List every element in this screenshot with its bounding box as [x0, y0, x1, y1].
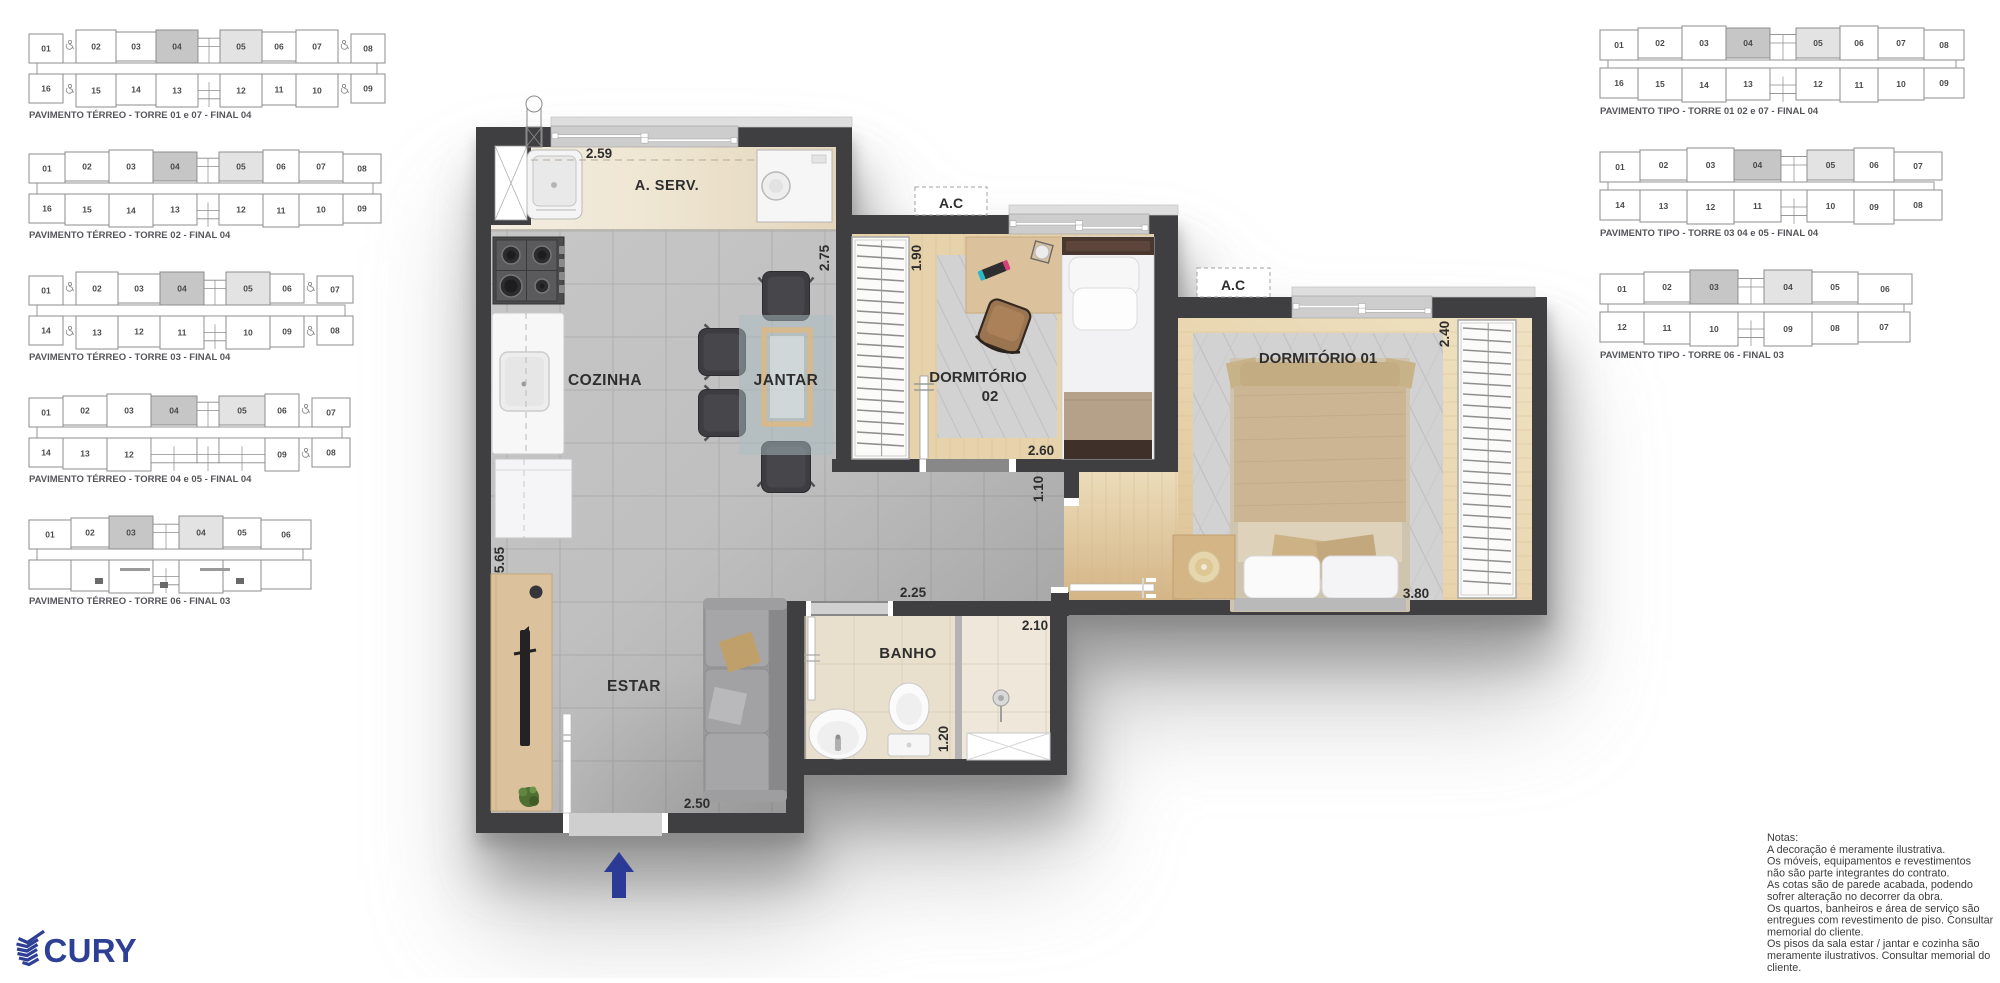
svg-text:12: 12 — [124, 450, 134, 460]
svg-text:07: 07 — [312, 42, 322, 52]
svg-text:04: 04 — [170, 162, 180, 172]
svg-text:2.60: 2.60 — [1028, 443, 1054, 458]
svg-text:05: 05 — [243, 284, 253, 294]
svg-text:A decoração é meramente ilustr: A decoração é meramente ilustrativa. — [1767, 844, 1945, 856]
svg-text:memorial do cliente.: memorial do cliente. — [1767, 926, 1864, 938]
svg-text:07: 07 — [1879, 322, 1889, 332]
svg-text:07: 07 — [1896, 38, 1906, 48]
svg-text:2.59: 2.59 — [586, 146, 612, 161]
svg-text:03: 03 — [1699, 38, 1709, 48]
svg-text:02: 02 — [82, 162, 92, 172]
svg-text:12: 12 — [1813, 79, 1823, 89]
svg-text:09: 09 — [277, 450, 287, 460]
svg-text:08: 08 — [1939, 40, 1949, 50]
svg-text:entregues com revestimento de: entregues com revestimento de piso. Cons… — [1767, 915, 1994, 927]
svg-text:14: 14 — [126, 206, 136, 216]
svg-text:03: 03 — [126, 162, 136, 172]
svg-text:JANTAR: JANTAR — [754, 372, 819, 389]
svg-text:ESTAR: ESTAR — [607, 678, 661, 695]
svg-text:10: 10 — [312, 86, 322, 96]
svg-text:02: 02 — [85, 528, 95, 538]
svg-text:05: 05 — [1826, 160, 1836, 170]
svg-text:PAVIMENTO TÉRREO - TORRE 01 e: PAVIMENTO TÉRREO - TORRE 01 e 07 - FINAL… — [29, 110, 252, 121]
svg-text:11: 11 — [277, 206, 286, 216]
svg-text:PAVIMENTO TÉRREO - TORRE 06 -: PAVIMENTO TÉRREO - TORRE 06 - FINAL 03 — [29, 596, 230, 607]
svg-text:01: 01 — [1614, 40, 1624, 50]
svg-text:05: 05 — [237, 528, 247, 538]
svg-text:02: 02 — [1662, 282, 1672, 292]
svg-text:04: 04 — [172, 42, 182, 52]
svg-text:08: 08 — [326, 448, 336, 458]
svg-text:2.25: 2.25 — [900, 585, 927, 600]
svg-text:COZINHA: COZINHA — [568, 372, 642, 389]
svg-text:11: 11 — [1753, 201, 1762, 211]
svg-text:1.10: 1.10 — [1031, 476, 1046, 502]
svg-text:14: 14 — [41, 448, 51, 458]
svg-text:BANHO: BANHO — [879, 645, 937, 662]
svg-text:15: 15 — [82, 205, 92, 215]
svg-text:02: 02 — [92, 284, 102, 294]
svg-text:Os pisos da sala estar / janta: Os pisos da sala estar / jantar e cozinh… — [1767, 938, 1979, 950]
svg-text:13: 13 — [92, 328, 102, 338]
svg-text:06: 06 — [281, 530, 291, 540]
svg-text:06: 06 — [1869, 160, 1879, 170]
svg-text:04: 04 — [1753, 160, 1763, 170]
svg-text:11: 11 — [275, 85, 284, 95]
svg-text:A. SERV.: A. SERV. — [635, 178, 699, 194]
svg-text:13: 13 — [172, 86, 182, 96]
svg-text:Os móveis, equipamentos e reve: Os móveis, equipamentos e revestimentos — [1767, 856, 1972, 868]
svg-text:01: 01 — [1615, 162, 1625, 172]
svg-text:1.90: 1.90 — [909, 245, 924, 271]
svg-text:2.50: 2.50 — [684, 796, 710, 811]
svg-text:04: 04 — [1783, 282, 1793, 292]
svg-text:06: 06 — [276, 162, 286, 172]
svg-text:10: 10 — [1709, 324, 1719, 334]
svg-text:CURY: CURY — [44, 932, 137, 969]
svg-text:13: 13 — [80, 449, 90, 459]
svg-text:02: 02 — [1655, 38, 1665, 48]
svg-text:11: 11 — [178, 328, 187, 338]
svg-text:07: 07 — [326, 408, 336, 418]
svg-text:cliente.: cliente. — [1767, 962, 1801, 974]
svg-text:16: 16 — [1614, 78, 1624, 88]
svg-text:Os quartos, banheiros e área d: Os quartos, banheiros e área de serviço … — [1767, 903, 1979, 915]
svg-text:14: 14 — [1699, 80, 1709, 90]
svg-text:07: 07 — [330, 285, 340, 295]
svg-text:15: 15 — [1655, 79, 1665, 89]
svg-text:12: 12 — [134, 327, 144, 337]
svg-text:01: 01 — [1617, 284, 1627, 294]
svg-text:As cotas são de parede acabada: As cotas são de parede acabada, podendo — [1767, 879, 1973, 891]
svg-text:05: 05 — [1830, 282, 1840, 292]
svg-text:10: 10 — [243, 328, 253, 338]
svg-text:10: 10 — [1896, 79, 1906, 89]
svg-text:10: 10 — [1826, 201, 1836, 211]
svg-text:2.75: 2.75 — [817, 244, 832, 271]
svg-text:01: 01 — [41, 286, 51, 296]
svg-text:13: 13 — [1743, 79, 1753, 89]
svg-text:06: 06 — [274, 42, 284, 52]
svg-text:16: 16 — [42, 204, 52, 214]
svg-text:14: 14 — [41, 326, 51, 336]
svg-text:07: 07 — [1913, 161, 1923, 171]
svg-text:DORMITÓRIO: DORMITÓRIO — [929, 368, 1027, 386]
svg-text:02: 02 — [982, 388, 999, 405]
svg-text:09: 09 — [357, 204, 367, 214]
svg-text:03: 03 — [126, 528, 136, 538]
svg-text:03: 03 — [1709, 282, 1719, 292]
svg-text:não são parte integrantes do c: não são parte integrantes do contrato. — [1767, 867, 1949, 879]
svg-text:06: 06 — [282, 284, 292, 294]
svg-text:2.40: 2.40 — [1437, 321, 1452, 347]
svg-text:10: 10 — [316, 205, 326, 215]
svg-text:09: 09 — [1939, 78, 1949, 88]
svg-text:04: 04 — [169, 406, 179, 416]
svg-text:05: 05 — [236, 162, 246, 172]
svg-text:12: 12 — [1617, 322, 1627, 332]
svg-text:Notas:: Notas: — [1767, 832, 1798, 844]
svg-text:03: 03 — [124, 406, 134, 416]
svg-text:07: 07 — [316, 162, 326, 172]
svg-text:A.C: A.C — [939, 195, 963, 211]
svg-text:06: 06 — [1880, 284, 1890, 294]
svg-text:16: 16 — [41, 84, 51, 94]
svg-text:08: 08 — [330, 326, 340, 336]
svg-text:02: 02 — [80, 406, 90, 416]
svg-text:06: 06 — [1854, 38, 1864, 48]
svg-text:03: 03 — [1706, 160, 1716, 170]
svg-text:09: 09 — [363, 84, 373, 94]
svg-text:01: 01 — [41, 44, 51, 54]
svg-text:3.80: 3.80 — [1403, 586, 1429, 601]
svg-text:12: 12 — [236, 205, 246, 215]
svg-text:09: 09 — [282, 327, 292, 337]
svg-text:02: 02 — [91, 42, 101, 52]
svg-text:03: 03 — [134, 284, 144, 294]
svg-text:15: 15 — [91, 86, 101, 96]
svg-text:03: 03 — [131, 42, 141, 52]
svg-text:PAVIMENTO TIPO - TORRE 03 04 e: PAVIMENTO TIPO - TORRE 03 04 e 05 - FINA… — [1600, 228, 1819, 239]
svg-text:12: 12 — [1706, 202, 1716, 212]
svg-text:08: 08 — [1830, 323, 1840, 333]
svg-text:04: 04 — [1743, 38, 1753, 48]
svg-text:PAVIMENTO TÉRREO - TORRE 03 -: PAVIMENTO TÉRREO - TORRE 03 - FINAL 04 — [29, 352, 231, 363]
svg-text:13: 13 — [1659, 201, 1669, 211]
svg-text:11: 11 — [1855, 80, 1864, 90]
svg-text:06: 06 — [277, 406, 287, 416]
svg-text:meramente ilustrativos. Consul: meramente ilustrativos. Consultar memori… — [1767, 950, 1990, 962]
svg-text:01: 01 — [45, 530, 55, 540]
svg-text:13: 13 — [170, 205, 180, 215]
svg-text:14: 14 — [131, 85, 141, 95]
svg-text:5.65: 5.65 — [492, 546, 507, 573]
svg-text:08: 08 — [357, 164, 367, 174]
svg-text:PAVIMENTO TÉRREO - TORRE 02 -: PAVIMENTO TÉRREO - TORRE 02 - FINAL 04 — [29, 230, 231, 241]
svg-text:05: 05 — [1813, 38, 1823, 48]
svg-text:2.10: 2.10 — [1022, 618, 1048, 633]
svg-text:PAVIMENTO TIPO - TORRE 06 - FI: PAVIMENTO TIPO - TORRE 06 - FINAL 03 — [1600, 350, 1784, 361]
svg-text:01: 01 — [41, 408, 51, 418]
svg-text:05: 05 — [237, 406, 247, 416]
svg-text:PAVIMENTO TIPO - TORRE 01 02 e: PAVIMENTO TIPO - TORRE 01 02 e 07 - FINA… — [1600, 106, 1819, 117]
svg-text:11: 11 — [1663, 323, 1672, 333]
svg-text:09: 09 — [1869, 202, 1879, 212]
svg-text:09: 09 — [1783, 324, 1793, 334]
svg-text:08: 08 — [1913, 200, 1923, 210]
svg-text:08: 08 — [363, 44, 373, 54]
svg-text:02: 02 — [1659, 160, 1669, 170]
svg-text:1.20: 1.20 — [936, 726, 951, 752]
svg-text:DORMITÓRIO 01: DORMITÓRIO 01 — [1259, 349, 1377, 367]
svg-text:04: 04 — [196, 528, 206, 538]
svg-text:sofrer alteração no decorrer d: sofrer alteração no decorrer da obra. — [1767, 891, 1943, 903]
svg-text:05: 05 — [236, 42, 246, 52]
svg-text:04: 04 — [177, 284, 187, 294]
svg-text:PAVIMENTO TÉRREO - TORRE 04 e: PAVIMENTO TÉRREO - TORRE 04 e 05 - FINAL… — [29, 474, 252, 485]
svg-text:01: 01 — [42, 164, 52, 174]
svg-text:A.C: A.C — [1221, 277, 1245, 293]
svg-text:12: 12 — [236, 86, 246, 96]
svg-text:14: 14 — [1615, 200, 1625, 210]
